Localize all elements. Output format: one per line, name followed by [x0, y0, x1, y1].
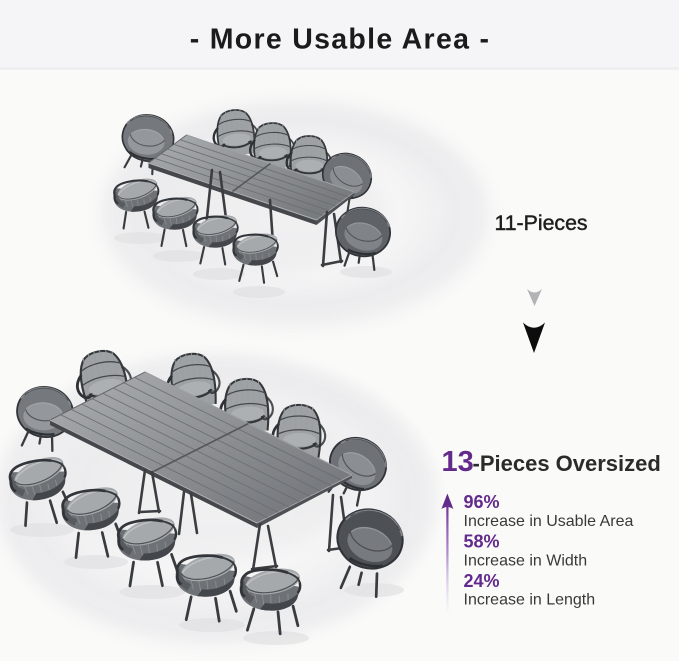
svg-text:58%: 58%: [464, 532, 500, 552]
svg-text:- More Usable Area -: - More Usable Area -: [190, 24, 491, 56]
svg-text:Increase in Length: Increase in Length: [464, 592, 596, 609]
svg-text:24%: 24%: [464, 571, 500, 591]
svg-text:11-Pieces: 11-Pieces: [494, 211, 587, 235]
svg-text:Increase in Usable Area: Increase in Usable Area: [464, 513, 634, 530]
svg-text:Increase in Width: Increase in Width: [464, 553, 588, 570]
svg-text:13: 13: [442, 446, 474, 478]
svg-text:-Pieces Oversized: -Pieces Oversized: [473, 451, 661, 476]
svg-text:96%: 96%: [464, 492, 500, 512]
